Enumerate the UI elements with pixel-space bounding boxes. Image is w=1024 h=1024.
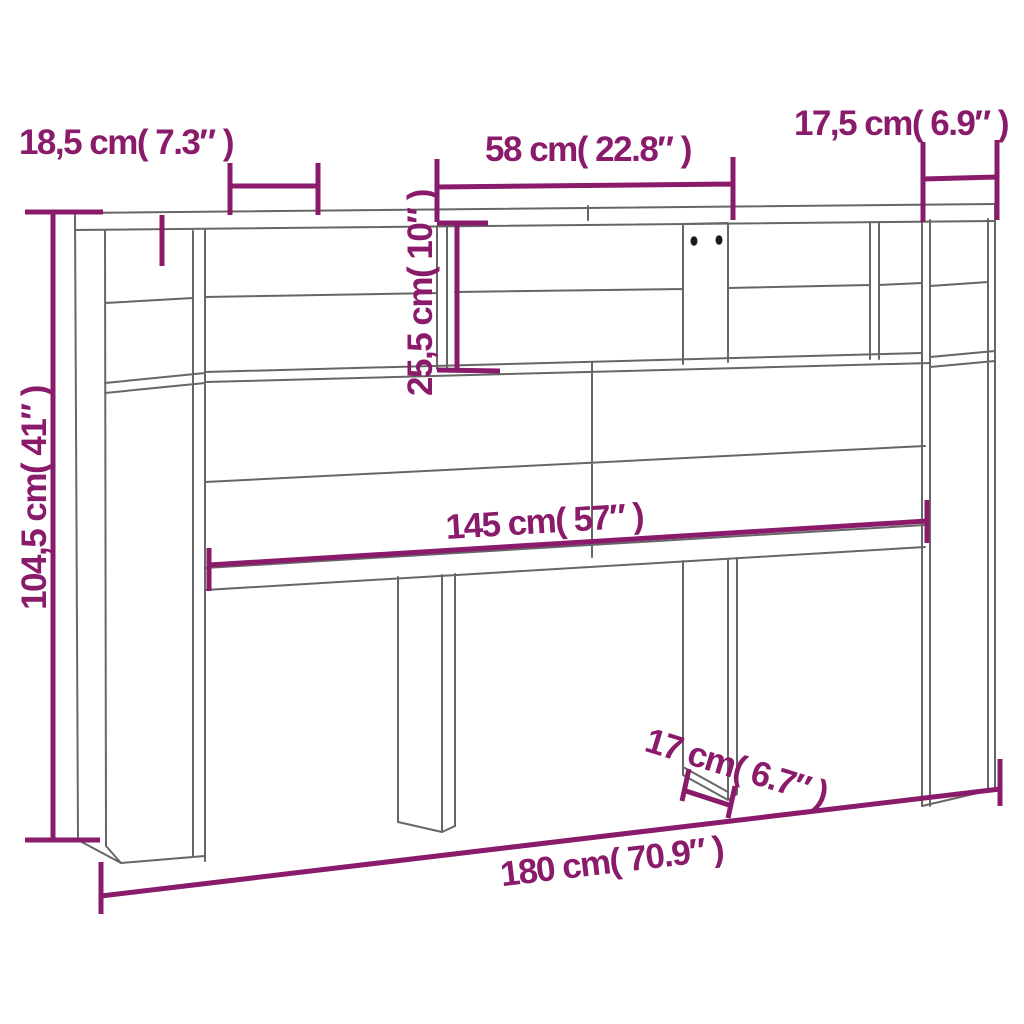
shelf-row-outline	[205, 222, 930, 382]
headboard-panel-outline	[205, 363, 925, 590]
dimension-label-overall-height: 104,5 cm( 41″ )	[15, 386, 54, 610]
dimension-label-top-left-depth: 18,5 cm( 7.3″ )	[19, 123, 233, 162]
dimension-lines-top-right-depth	[923, 140, 997, 222]
top-panel-outline	[75, 204, 995, 230]
dimension-label-shelf-height: 25,5 cm( 10″ )	[401, 190, 440, 396]
dimension-lines-overall-width	[101, 759, 1000, 914]
screw-hole-icon	[716, 235, 723, 245]
dimension-lines-top-left-depth	[162, 163, 318, 266]
left-side-panel-outline	[75, 213, 205, 863]
dimension-label-top-center-width: 58 cm( 22.8″ )	[485, 130, 691, 169]
dimension-diagram-page: 18,5 cm( 7.3″ ) 58 cm( 22.8″ ) 17,5 cm( …	[0, 0, 1024, 1024]
screw-hole-icon	[691, 236, 698, 246]
left-leg-outline	[398, 574, 455, 832]
headboard-dimension-diagram: 18,5 cm( 7.3″ ) 58 cm( 22.8″ ) 17,5 cm( …	[0, 0, 1024, 1024]
dimension-label-overall-width: 180 cm( 70.9″ )	[498, 829, 725, 894]
dimension-label-top-right-depth: 17,5 cm( 6.9″ )	[794, 104, 1008, 143]
right-side-panel-outline	[922, 204, 995, 806]
